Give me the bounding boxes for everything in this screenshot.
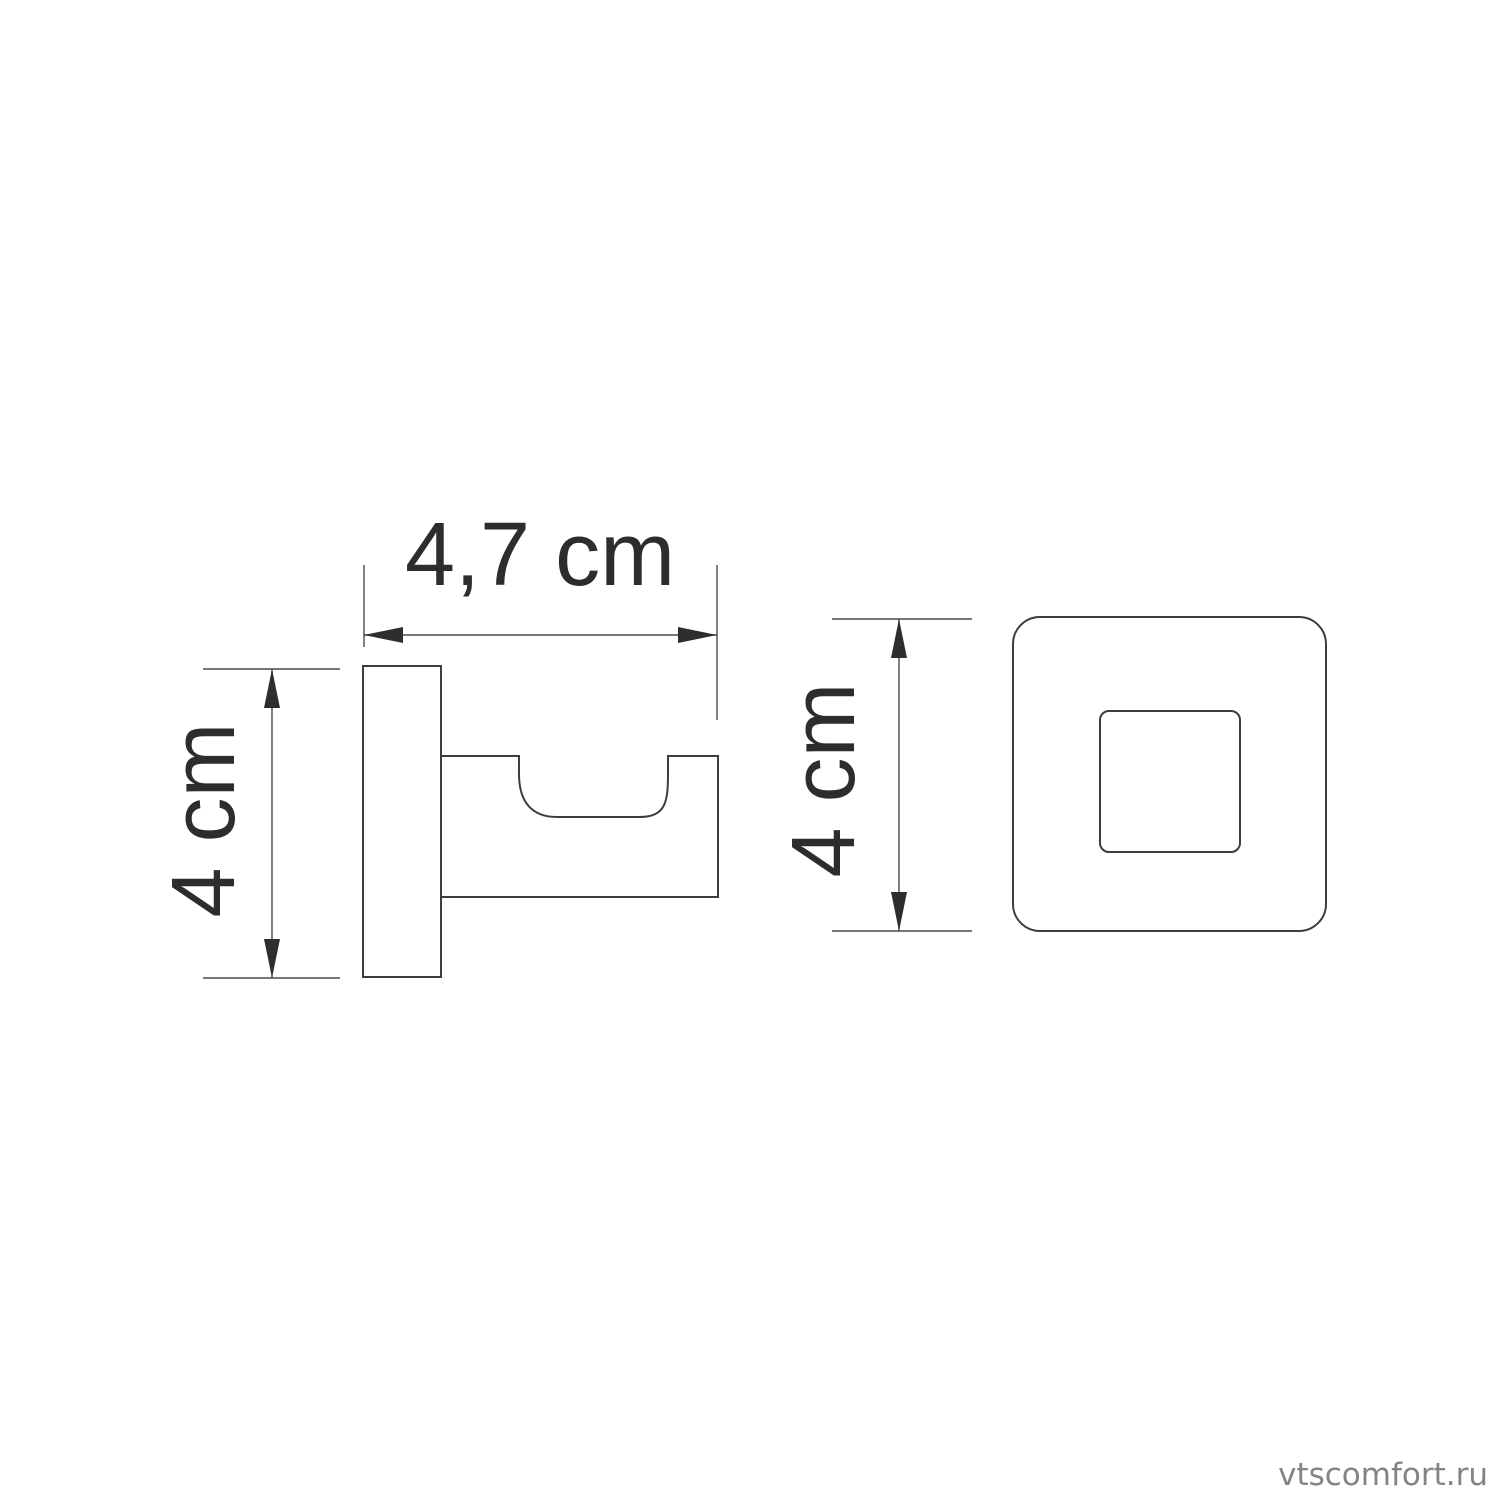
arrowhead-right-icon	[678, 627, 717, 643]
front-view	[1013, 617, 1326, 931]
hook-arm-outline	[441, 756, 718, 897]
side-view-height-label: 4 cm	[159, 722, 249, 917]
front-plate-outline	[1013, 617, 1326, 931]
arrowhead-down-icon	[891, 892, 907, 931]
front-view-height-label: 4 cm	[779, 682, 869, 877]
technical-drawing-page: 4,7 cm 4 cm 4 cm vtscomfort.ru	[0, 0, 1500, 1500]
side-view-width-label: 4,7 cm	[405, 510, 675, 600]
arrowhead-up-icon	[264, 669, 280, 708]
arrowhead-left-icon	[364, 627, 403, 643]
wall-plate-outline	[363, 666, 441, 977]
side-view	[363, 666, 718, 977]
front-hook-stem-outline	[1100, 711, 1240, 852]
watermark-text: vtscomfort.ru	[1278, 1457, 1488, 1494]
arrowhead-up-icon	[891, 619, 907, 658]
arrowhead-down-icon	[264, 939, 280, 978]
